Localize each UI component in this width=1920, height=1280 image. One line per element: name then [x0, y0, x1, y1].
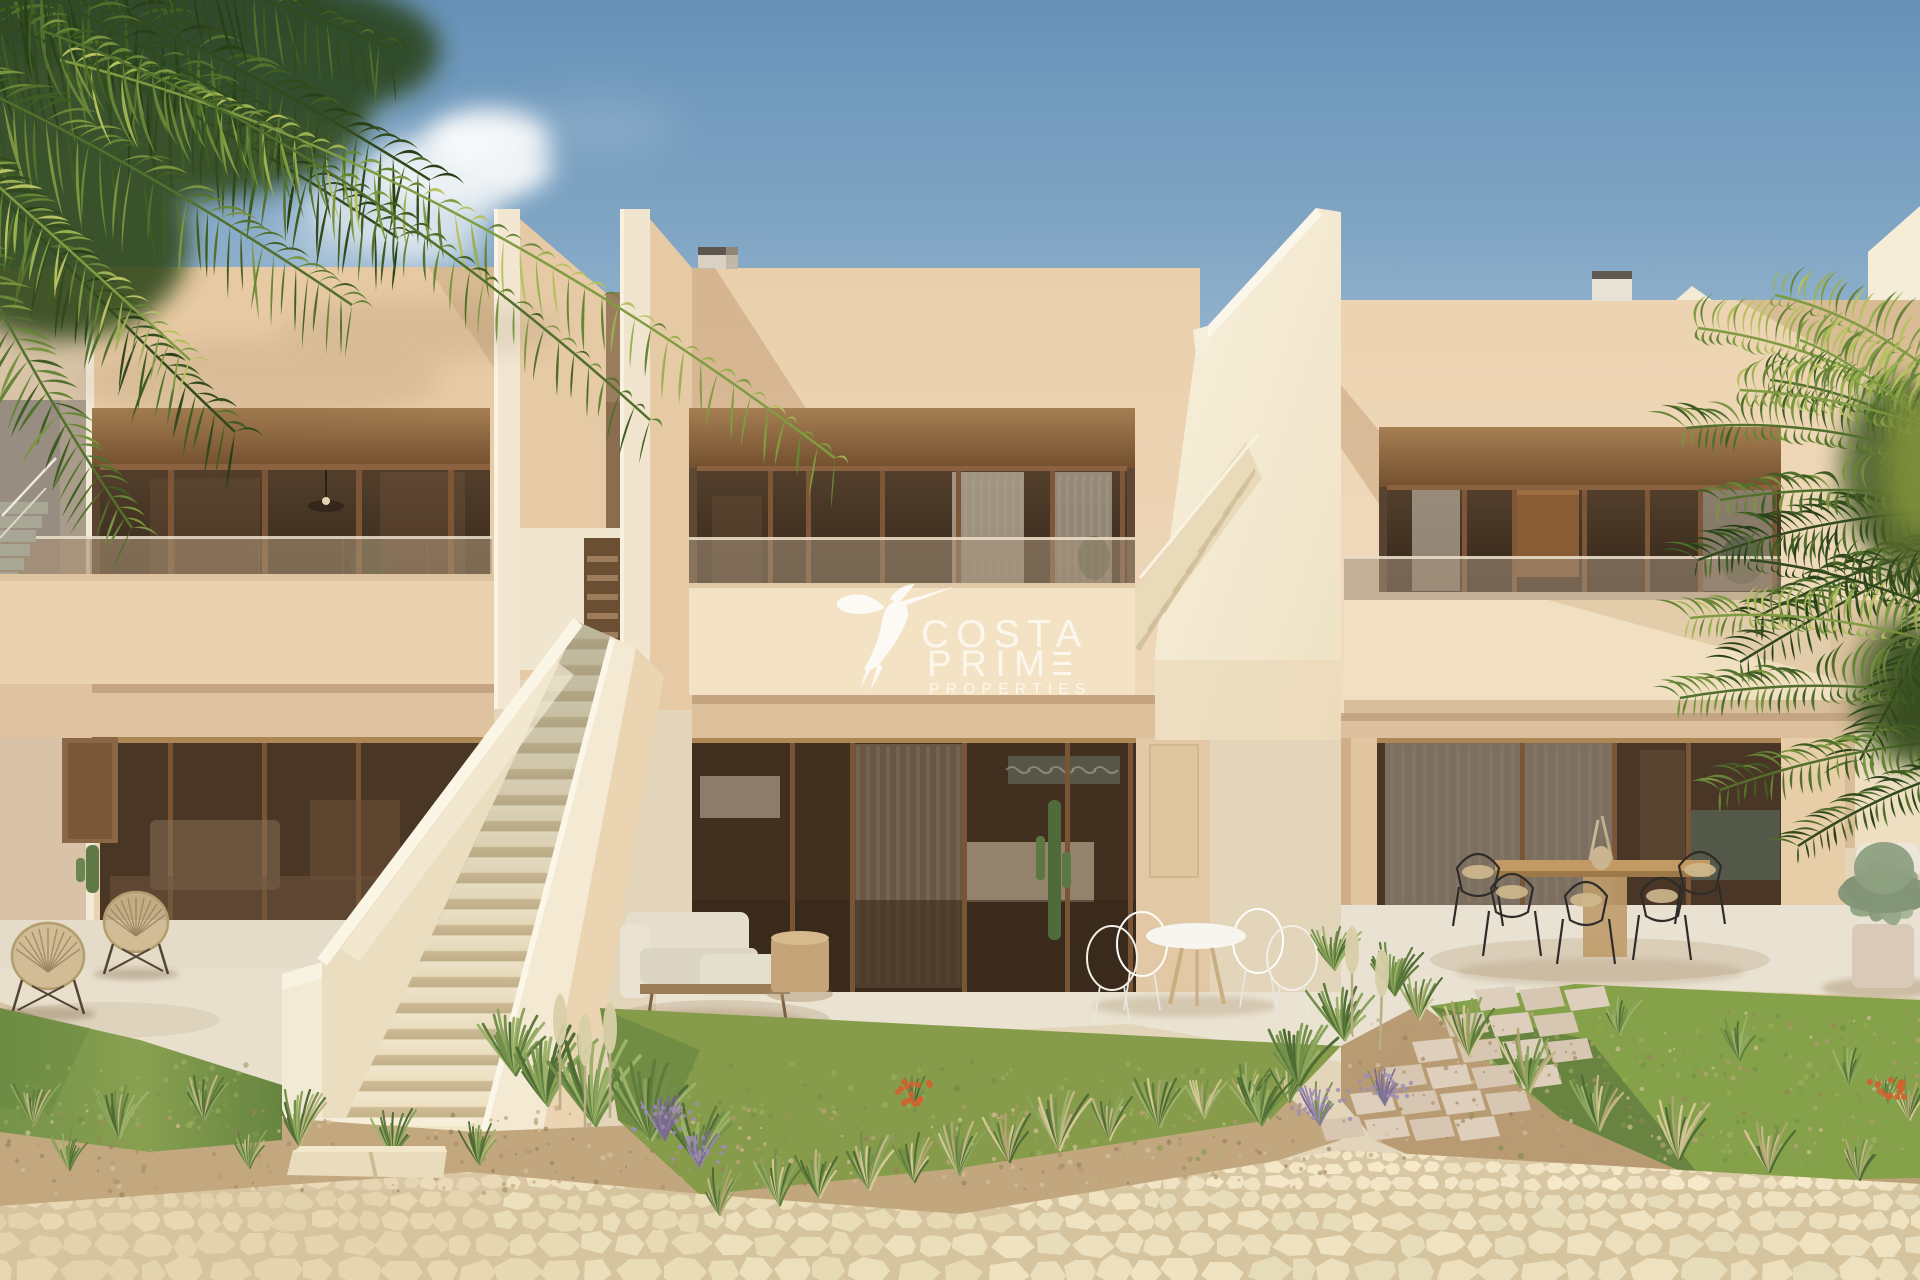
- svg-text:PRIM: PRIM: [927, 643, 1054, 684]
- svg-text:PROPERTIES: PROPERTIES: [929, 681, 1092, 698]
